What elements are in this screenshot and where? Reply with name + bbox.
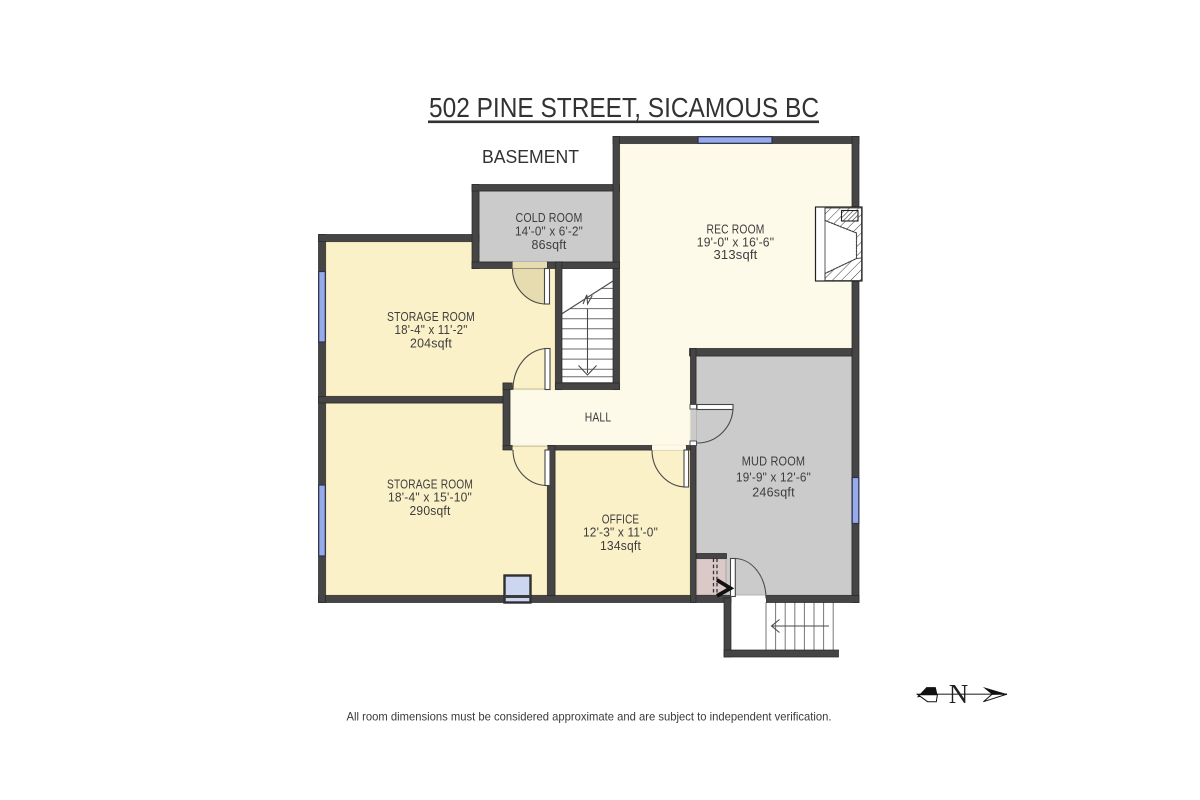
- svg-text:86sqft: 86sqft: [532, 238, 567, 252]
- svg-text:STORAGE ROOM: STORAGE ROOM: [387, 478, 473, 492]
- svg-text:313sqft: 313sqft: [714, 248, 758, 262]
- svg-text:18'-4" x 11'-2": 18'-4" x 11'-2": [395, 323, 468, 337]
- svg-text:BASEMENT: BASEMENT: [482, 146, 579, 167]
- svg-text:290sqft: 290sqft: [410, 504, 451, 518]
- svg-text:502 PINE STREET, SICAMOUS BC: 502 PINE STREET, SICAMOUS BC: [429, 92, 819, 123]
- svg-text:N: N: [949, 679, 969, 709]
- svg-text:STORAGE ROOM: STORAGE ROOM: [387, 310, 475, 324]
- svg-text:MUD ROOM: MUD ROOM: [742, 455, 806, 469]
- svg-text:COLD ROOM: COLD ROOM: [516, 211, 583, 225]
- svg-text:REC ROOM: REC ROOM: [707, 223, 765, 237]
- svg-text:14'-0" x 6'-2": 14'-0" x 6'-2": [515, 225, 583, 239]
- svg-text:All room dimensions must be co: All room dimensions must be considered a…: [347, 710, 832, 724]
- svg-text:134sqft: 134sqft: [600, 539, 641, 553]
- svg-text:18'-4" x 15'-10": 18'-4" x 15'-10": [388, 491, 472, 505]
- svg-text:246sqft: 246sqft: [752, 486, 795, 500]
- svg-text:19'-9" x 12'-6": 19'-9" x 12'-6": [736, 471, 811, 485]
- svg-text:204sqft: 204sqft: [410, 337, 452, 351]
- svg-text:OFFICE: OFFICE: [602, 513, 640, 527]
- svg-text:12'-3" x 11'-0": 12'-3" x 11'-0": [583, 526, 658, 540]
- svg-text:HALL: HALL: [585, 411, 612, 425]
